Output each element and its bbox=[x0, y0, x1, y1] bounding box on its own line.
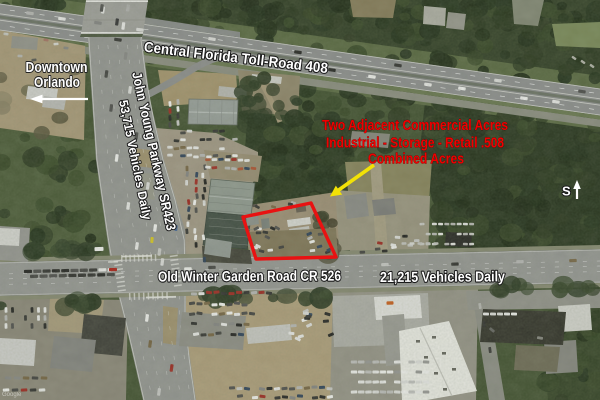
svg-text:21,215 Vehicles Daily: 21,215 Vehicles Daily bbox=[380, 269, 505, 286]
svg-text:Downtown: Downtown bbox=[26, 60, 88, 76]
svg-text:S: S bbox=[562, 184, 571, 199]
svg-text:Orlando: Orlando bbox=[34, 75, 80, 91]
svg-text:Old Winter Garden Road CR 526: Old Winter Garden Road CR 526 bbox=[158, 269, 341, 286]
svg-text:Industrial - Storage - Retail: Industrial - Storage - Retail .508 bbox=[326, 136, 504, 152]
svg-text:Two Adjacent Commercial Acres: Two Adjacent Commercial Acres bbox=[322, 118, 508, 134]
svg-text:Google: Google bbox=[2, 392, 22, 398]
svg-text:Combined Acres: Combined Acres bbox=[368, 152, 464, 168]
